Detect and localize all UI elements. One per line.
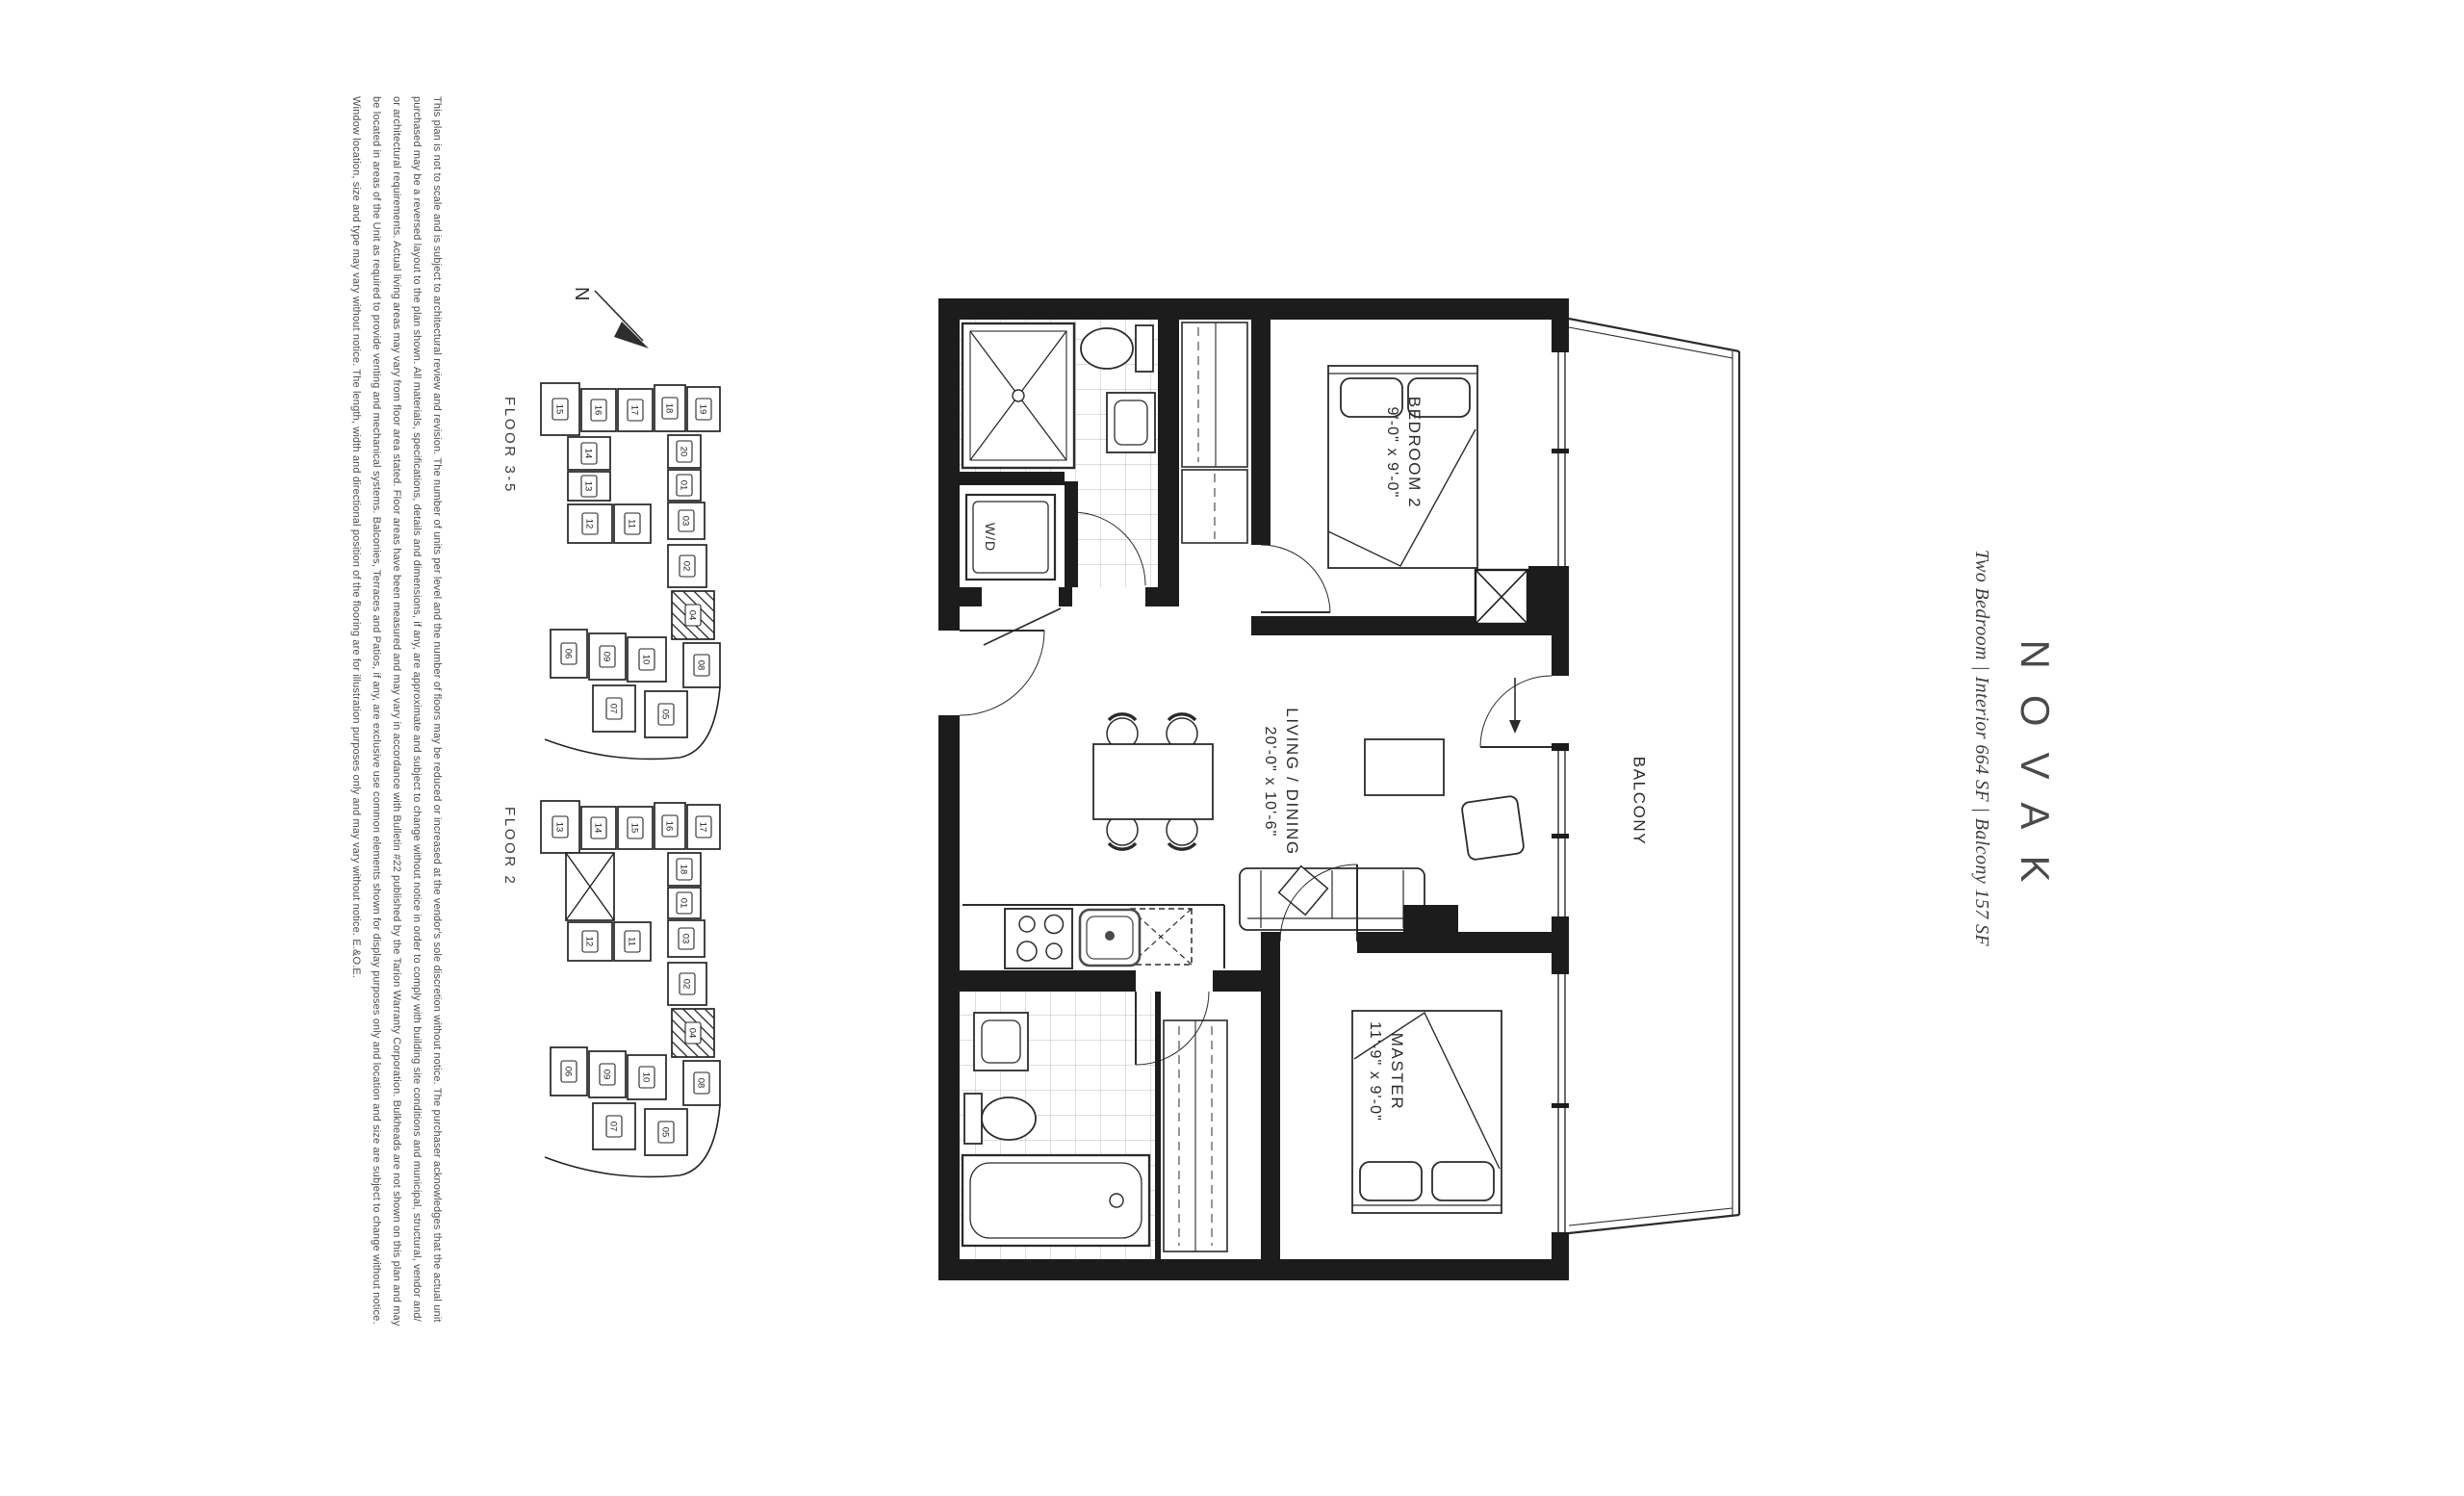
keyplan-unit — [566, 853, 614, 920]
svg-text:05: 05 — [660, 709, 671, 720]
keyplan-unit: 07 — [593, 1103, 635, 1149]
keyplan-floor-2: 171615141318010311120204081009060507 — [528, 789, 726, 1194]
svg-text:11: 11 — [627, 937, 637, 946]
keyplan-unit: 06 — [551, 630, 587, 678]
svg-text:01: 01 — [679, 480, 689, 491]
svg-text:18: 18 — [679, 864, 689, 875]
keyplan-unit-highlighted: 04 — [672, 591, 714, 639]
room-label-laundry: W/D — [983, 523, 998, 552]
keyplan-unit: 13 — [541, 801, 579, 853]
svg-text:09: 09 — [602, 652, 612, 662]
room-dims: 11'-9" x 9'-0" — [1364, 1021, 1386, 1122]
keyplan-unit: 09 — [589, 1051, 626, 1097]
keyplan-unit: 08 — [683, 643, 720, 687]
keyplan-unit: 05 — [645, 691, 687, 737]
svg-text:14: 14 — [583, 449, 594, 459]
keyplan-unit: 12 — [568, 504, 612, 543]
svg-text:17: 17 — [629, 405, 640, 416]
svg-text:10: 10 — [641, 655, 652, 665]
keyplan-unit: 19 — [687, 387, 720, 431]
room-name: MASTER — [1388, 1033, 1406, 1110]
north-arrow-icon — [593, 285, 651, 354]
room-name: BEDROOM 2 — [1405, 397, 1424, 508]
north-label: N — [570, 287, 592, 301]
keyplan-unit: 11 — [614, 922, 651, 961]
keyplan-unit: 11 — [614, 504, 651, 543]
keyplan-unit: 17 — [618, 389, 653, 431]
keyplan-unit: 15 — [618, 807, 653, 849]
svg-text:15: 15 — [554, 404, 565, 415]
keyplan-unit: 17 — [687, 805, 720, 849]
svg-text:04: 04 — [687, 610, 698, 621]
keyplan-unit-highlighted: 04 — [672, 1009, 714, 1057]
room-label-bedroom2: BEDROOM 2 9'-0" x 9'-0" — [1381, 397, 1425, 508]
keyplan-unit: 16 — [581, 389, 616, 431]
keyplan-unit: 13 — [568, 472, 610, 501]
svg-text:13: 13 — [583, 481, 594, 492]
keyplan-label-floor-2: FLOOR 2 — [501, 807, 518, 886]
page: NOVAK Two Bedroom | Interior 664 SF | Ba… — [0, 0, 2464, 1496]
keyplan-unit: 08 — [683, 1061, 720, 1105]
svg-text:16: 16 — [593, 405, 603, 416]
svg-text:16: 16 — [664, 821, 675, 832]
room-dims: 9'-0" x 9'-0" — [1381, 397, 1403, 508]
keyplan-unit: 12 — [568, 922, 612, 961]
page-tagline: Two Bedroom | Interior 664 SF | Balcony … — [1970, 0, 1992, 1496]
keyplan-unit: 03 — [668, 503, 705, 539]
svg-text:17: 17 — [698, 822, 708, 833]
keyplan-unit: 15 — [541, 383, 579, 435]
keyplan-unit: 06 — [551, 1047, 587, 1096]
keyplan-unit: 01 — [668, 888, 701, 918]
svg-text:06: 06 — [563, 1067, 574, 1077]
keyplan-unit: 18 — [654, 385, 685, 431]
room-label-living-dining: LIVING / DINING 20'-0" x 10'-6" — [1259, 708, 1303, 855]
floorplan-sheet: NOVAK Two Bedroom | Interior 664 SF | Ba… — [0, 0, 2464, 1496]
keyplan-unit: 16 — [654, 803, 685, 849]
keyplan-unit: 01 — [668, 470, 701, 501]
keyplan-unit: 07 — [593, 685, 635, 732]
svg-text:15: 15 — [629, 823, 640, 834]
disclaimer-line: purchased may be a reversed layout to th… — [406, 96, 426, 1463]
svg-text:05: 05 — [660, 1127, 671, 1138]
svg-text:02: 02 — [681, 561, 692, 572]
svg-text:08: 08 — [696, 1078, 706, 1089]
keyplan-unit: 02 — [668, 545, 706, 587]
keyplan-unit: 03 — [668, 920, 705, 957]
keyplan-unit: 10 — [628, 1055, 666, 1099]
svg-text:07: 07 — [608, 704, 619, 714]
keyplan-unit: 05 — [645, 1109, 687, 1155]
svg-text:12: 12 — [584, 519, 595, 529]
disclaimer-line: be located in areas of the Unit as requi… — [366, 96, 386, 1463]
svg-text:19: 19 — [698, 404, 708, 415]
svg-text:13: 13 — [554, 822, 565, 833]
keyplan-unit: 20 — [668, 435, 701, 468]
svg-text:12: 12 — [584, 937, 595, 947]
keyplan-unit: 10 — [628, 637, 666, 682]
room-label-master: MASTER 11'-9" x 9'-0" — [1364, 1021, 1408, 1122]
svg-text:04: 04 — [687, 1028, 698, 1039]
svg-text:06: 06 — [563, 649, 574, 659]
north-arrow: N — [570, 285, 651, 354]
keyplan-label-floor-3-5: FLOOR 3-5 — [501, 397, 518, 494]
svg-text:09: 09 — [602, 1070, 612, 1080]
keyplan-floor-3-5: 1918171615200114130311120204081009060507 — [528, 372, 726, 776]
disclaimer-line: or architectural requirements. Actual li… — [386, 96, 406, 1463]
disclaimer-line: Window location, size and type may vary … — [346, 96, 366, 1463]
svg-text:03: 03 — [680, 934, 691, 944]
svg-text:20: 20 — [679, 447, 689, 457]
svg-text:14: 14 — [593, 823, 603, 834]
svg-text:01: 01 — [679, 898, 689, 909]
svg-text:08: 08 — [696, 660, 706, 671]
svg-text:03: 03 — [680, 516, 691, 527]
page-title: NOVAK — [2012, 0, 2058, 1496]
disclaimer: This plan is not to scale and is subject… — [346, 96, 447, 1463]
keyplan-unit: 02 — [668, 963, 706, 1005]
room-dims: 20'-0" x 10'-6" — [1259, 708, 1281, 855]
room-label-balcony: BALCONY — [1629, 757, 1651, 845]
room-name: LIVING / DINING — [1283, 708, 1301, 855]
disclaimer-line: This plan is not to scale and is subject… — [426, 96, 447, 1463]
svg-text:11: 11 — [627, 519, 637, 529]
keyplan-unit: 18 — [668, 853, 701, 886]
svg-text:07: 07 — [608, 1122, 619, 1132]
keyplan-unit: 09 — [589, 633, 626, 680]
svg-text:02: 02 — [681, 979, 692, 990]
keyplan-unit: 14 — [581, 807, 616, 849]
svg-text:18: 18 — [664, 403, 675, 414]
svg-text:10: 10 — [641, 1072, 652, 1083]
keyplan-unit: 14 — [568, 437, 610, 470]
